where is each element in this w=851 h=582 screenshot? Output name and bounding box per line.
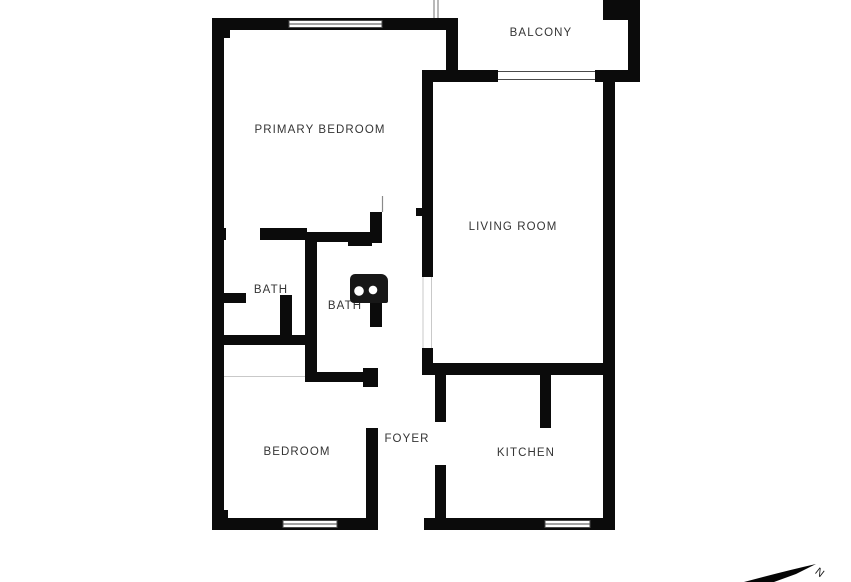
room-label-kitchen: KITCHEN xyxy=(497,447,555,459)
compass-north-label: N xyxy=(812,566,826,580)
wall-segment xyxy=(260,228,307,240)
balcony-slider-icon xyxy=(498,70,595,82)
window-cap xyxy=(277,518,283,530)
wall-segment xyxy=(422,70,498,82)
wall-segment xyxy=(280,295,292,345)
watermark-fragment xyxy=(350,274,388,303)
wall-segment xyxy=(603,0,640,20)
wall-segment xyxy=(212,335,317,345)
wall-segment xyxy=(540,375,551,428)
window-cap xyxy=(283,18,289,30)
window-cap xyxy=(590,518,596,530)
room-label-bedroom: BEDROOM xyxy=(263,446,330,458)
room-label-bath-1: BATH xyxy=(254,284,288,296)
room-label-primary-bedroom: PRIMARY BEDROOM xyxy=(254,124,385,136)
room-label-living-room: LIVING ROOM xyxy=(469,221,558,233)
wall-segment xyxy=(422,80,433,277)
room-label-balcony: BALCONY xyxy=(510,27,573,39)
room-label-foyer: FOYER xyxy=(384,433,429,445)
wall-segment xyxy=(435,375,446,422)
wall-segment xyxy=(595,70,640,82)
wall-segment xyxy=(212,18,224,530)
interior-walls xyxy=(212,80,615,530)
wall-segment xyxy=(435,465,446,528)
window-cap xyxy=(337,518,343,530)
floorplan-canvas: N PRIMARY BEDROOM BALCONY LIVING ROOM BA… xyxy=(0,0,851,582)
wall-segment xyxy=(305,372,378,382)
window-cap xyxy=(382,18,388,30)
floorplan-drawing: N xyxy=(0,0,851,582)
wall-segment xyxy=(366,428,378,530)
compass-arrow xyxy=(744,564,816,582)
wall-segment xyxy=(224,293,246,303)
balcony-divider-icon xyxy=(434,0,438,18)
wall-segment xyxy=(370,212,382,243)
wall-segment xyxy=(446,18,458,75)
wall-segment xyxy=(212,228,226,240)
window-cap xyxy=(539,518,545,530)
wall-segment xyxy=(348,233,372,246)
wall-segment xyxy=(416,208,423,216)
wall-segment xyxy=(305,232,317,382)
wall-segment xyxy=(422,363,615,375)
compass-north-icon: N xyxy=(744,564,826,582)
wall-segment xyxy=(603,80,615,530)
